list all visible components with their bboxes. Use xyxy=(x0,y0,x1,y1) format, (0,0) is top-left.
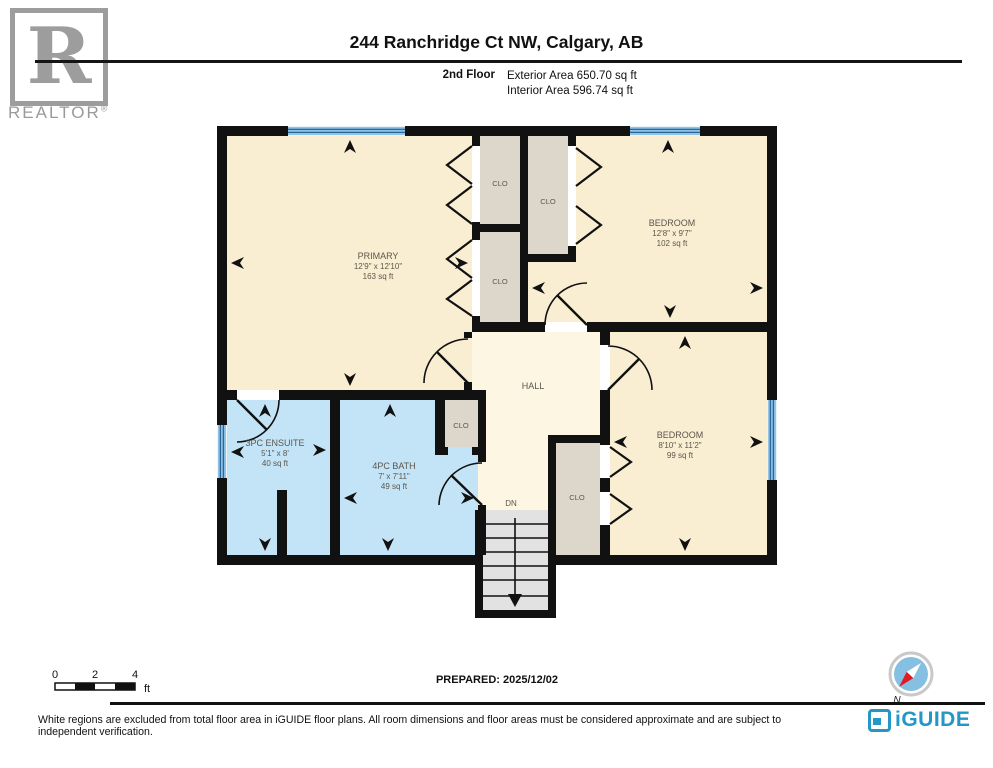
realtor-logo: R xyxy=(10,8,108,106)
iguide-brand-text: iGUIDE xyxy=(895,708,970,732)
room-fills xyxy=(227,136,767,610)
floor-label: 2nd Floor xyxy=(350,69,495,81)
iguide-logo: iGUIDE xyxy=(868,708,970,732)
bedroom-bottom-dims: 8'10" x 11'2" xyxy=(658,441,701,450)
primary-area: 163 sq ft xyxy=(363,272,394,281)
stairs-dn-label: DN xyxy=(505,499,517,508)
registered-mark: ® xyxy=(101,103,110,113)
window-right-bedroom xyxy=(768,400,776,480)
closet-label-4: CLO xyxy=(453,421,469,430)
bath-name: 4PC BATH xyxy=(372,461,415,471)
bedroom-top-dims: 12'8" x 9'7" xyxy=(652,229,692,238)
bedroom-top-name: BEDROOM xyxy=(649,218,696,228)
closet-label-5: CLO xyxy=(569,493,585,502)
realtor-logo-letter: R xyxy=(27,18,92,96)
exterior-area: Exterior Area 650.70 sq ft xyxy=(507,69,637,84)
scale-bar: 0 2 4 ft xyxy=(52,669,150,695)
room-primary xyxy=(227,136,472,390)
window-left-ensuite xyxy=(218,425,226,478)
page-title: 244 Ranchridge Ct NW, Calgary, AB xyxy=(0,32,993,53)
floor-plan-canvas: PRIMARY 12'9" x 12'10" 163 sq ft BEDROOM… xyxy=(0,0,993,768)
ensuite-area: 40 sq ft xyxy=(262,459,289,468)
realtor-wordmark: REALTOR® xyxy=(8,103,109,123)
floor-plan-page: PRIMARY 12'9" x 12'10" 163 sq ft BEDROOM… xyxy=(0,0,993,768)
ensuite-dims: 5'1" x 8' xyxy=(261,449,289,458)
closet-label-2: CLO xyxy=(492,277,508,286)
closet-label-3: CLO xyxy=(540,197,556,206)
hall-name: HALL xyxy=(522,381,545,391)
scale-tick-4: 4 xyxy=(132,669,138,681)
room-bedroom-top-ext xyxy=(528,262,576,322)
interior-area: Interior Area 596.74 sq ft xyxy=(507,84,637,99)
scale-tick-2: 2 xyxy=(92,669,98,681)
bedroom-bottom-name: BEDROOM xyxy=(657,430,704,440)
scale-tick-0: 0 xyxy=(52,669,58,681)
bath-area: 49 sq ft xyxy=(381,482,408,491)
window-top-bedroom xyxy=(630,127,700,135)
bath-dims: 7' x 7'11" xyxy=(378,472,410,481)
prepared-date: PREPARED: 2025/12/02 xyxy=(436,674,558,686)
bedroom-top-area: 102 sq ft xyxy=(657,239,688,248)
ensuite-name: 3PC ENSUITE xyxy=(245,438,304,448)
iguide-icon xyxy=(868,709,891,732)
area-summary: Exterior Area 650.70 sq ft Interior Area… xyxy=(507,69,637,99)
header-divider xyxy=(35,60,962,63)
compass-icon: N xyxy=(890,653,932,706)
window-top-primary xyxy=(288,127,405,135)
footer-divider xyxy=(110,702,985,705)
primary-name: PRIMARY xyxy=(358,251,399,261)
closet-label-1: CLO xyxy=(492,179,508,188)
closet-bedroom-top xyxy=(528,136,568,254)
primary-dims: 12'9" x 12'10" xyxy=(354,262,402,271)
scale-unit: ft xyxy=(144,683,150,695)
realtor-wordmark-text: REALTOR xyxy=(8,103,101,122)
disclaimer-text: White regions are excluded from total fl… xyxy=(38,714,838,738)
bedroom-bottom-area: 99 sq ft xyxy=(667,451,694,460)
